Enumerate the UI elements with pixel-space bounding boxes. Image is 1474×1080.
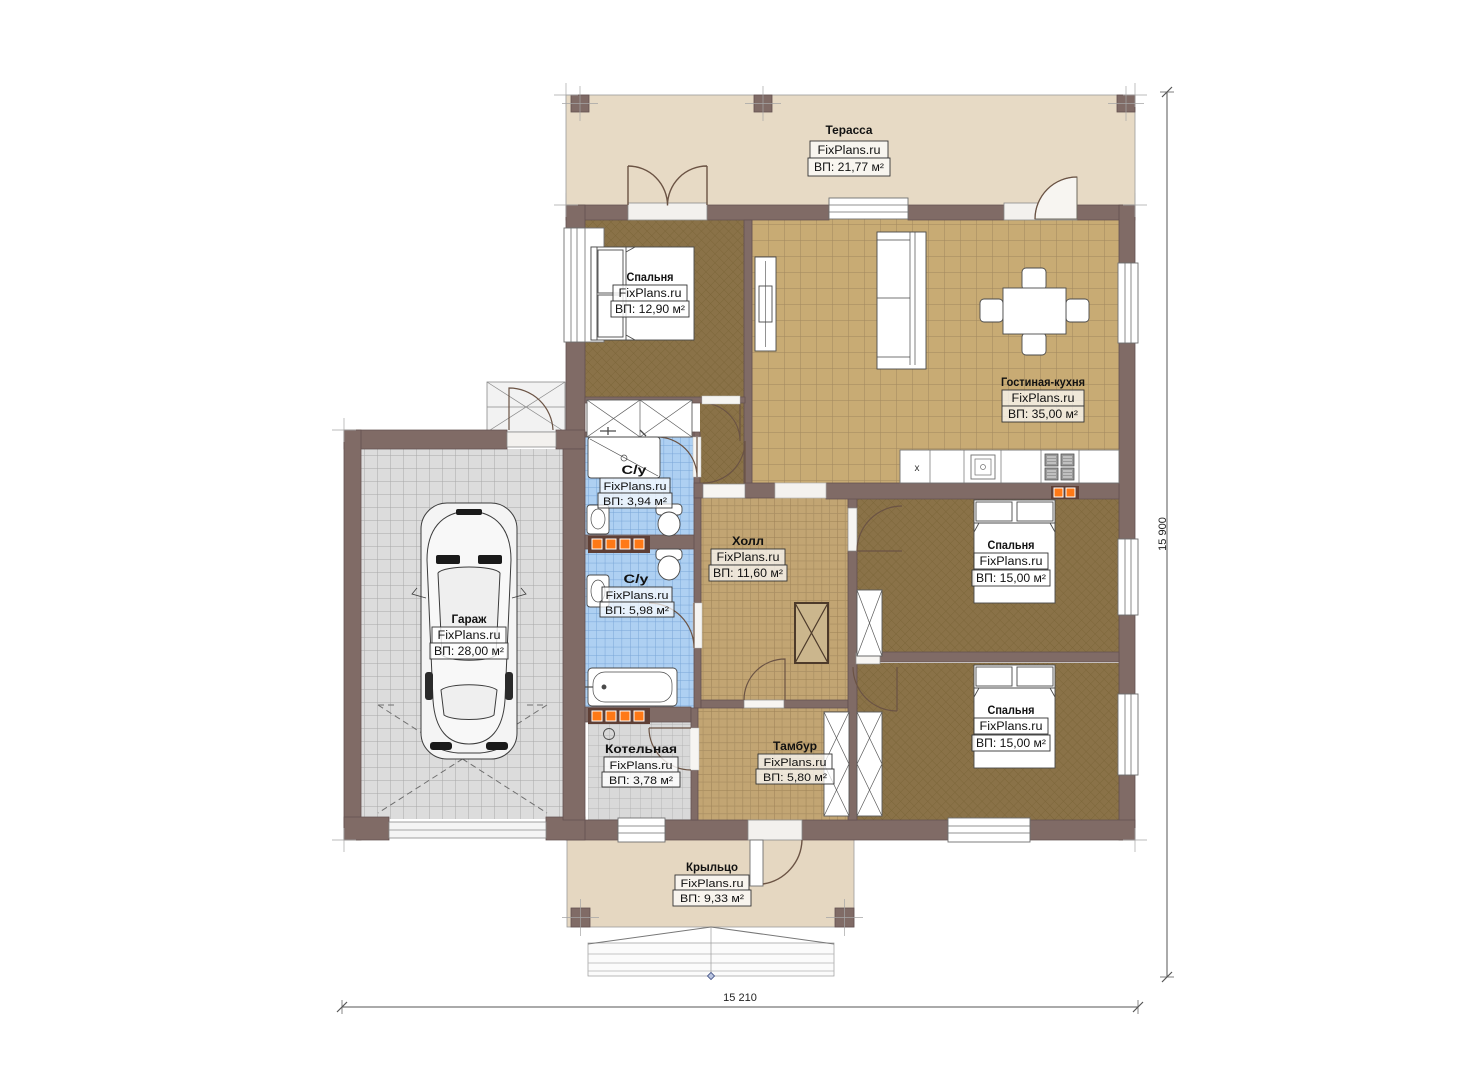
svg-text:FixPlans.ru: FixPlans.ru [717, 552, 780, 564]
svg-text:FixPlans.ru: FixPlans.ru [604, 481, 667, 493]
svg-text:x: x [915, 463, 920, 474]
svg-text:15 210: 15 210 [723, 992, 757, 1004]
svg-text:ВП: 28,00 м²: ВП: 28,00 м² [434, 646, 504, 658]
svg-text:FixPlans.ru: FixPlans.ru [438, 630, 501, 642]
svg-text:ВП: 5,80 м²: ВП: 5,80 м² [763, 772, 827, 784]
svg-text:FixPlans.ru: FixPlans.ru [818, 145, 881, 157]
svg-text:ВП: 3,94 м²: ВП: 3,94 м² [603, 496, 667, 508]
svg-text:Спальня: Спальня [988, 703, 1035, 717]
svg-text:ВП: 21,77 м²: ВП: 21,77 м² [814, 162, 884, 174]
svg-text:ВП: 9,33 м²: ВП: 9,33 м² [680, 893, 744, 905]
svg-text:15 900: 15 900 [1157, 517, 1169, 551]
svg-text:Терасса: Терасса [826, 123, 873, 137]
svg-text:Гостиная-кухня: Гостиная-кухня [1001, 375, 1085, 389]
svg-text:ВП: 11,60 м²: ВП: 11,60 м² [713, 568, 783, 580]
svg-text:Котельная: Котельная [605, 742, 677, 756]
svg-text:Тамбур: Тамбур [773, 739, 817, 753]
svg-text:FixPlans.ru: FixPlans.ru [980, 721, 1043, 733]
svg-text:С/у: С/у [624, 572, 649, 586]
svg-text:ВП: 15,00 м²: ВП: 15,00 м² [976, 738, 1046, 750]
svg-text:ВП: 3,78 м²: ВП: 3,78 м² [609, 775, 673, 787]
svg-text:FixPlans.ru: FixPlans.ru [610, 760, 673, 772]
svg-text:FixPlans.ru: FixPlans.ru [606, 590, 669, 602]
svg-text:ВП: 5,98 м²: ВП: 5,98 м² [605, 605, 669, 617]
svg-text:FixPlans.ru: FixPlans.ru [681, 878, 744, 890]
svg-text:С/у: С/у [622, 463, 647, 477]
svg-text:FixPlans.ru: FixPlans.ru [764, 757, 827, 769]
svg-text:FixPlans.ru: FixPlans.ru [1012, 393, 1075, 405]
svg-text:Крыльцо: Крыльцо [686, 860, 738, 874]
svg-text:Холл: Холл [732, 534, 764, 548]
svg-text:Спальня: Спальня [627, 270, 674, 284]
svg-text:ВП: 12,90 м²: ВП: 12,90 м² [615, 304, 685, 316]
svg-text:Спальня: Спальня [988, 538, 1035, 552]
svg-text:FixPlans.ru: FixPlans.ru [619, 288, 682, 300]
svg-text:ВП: 35,00 м²: ВП: 35,00 м² [1008, 409, 1078, 421]
svg-text:Гараж: Гараж [452, 612, 487, 626]
svg-text:ВП: 15,00 м²: ВП: 15,00 м² [976, 573, 1046, 585]
svg-text:FixPlans.ru: FixPlans.ru [980, 556, 1043, 568]
